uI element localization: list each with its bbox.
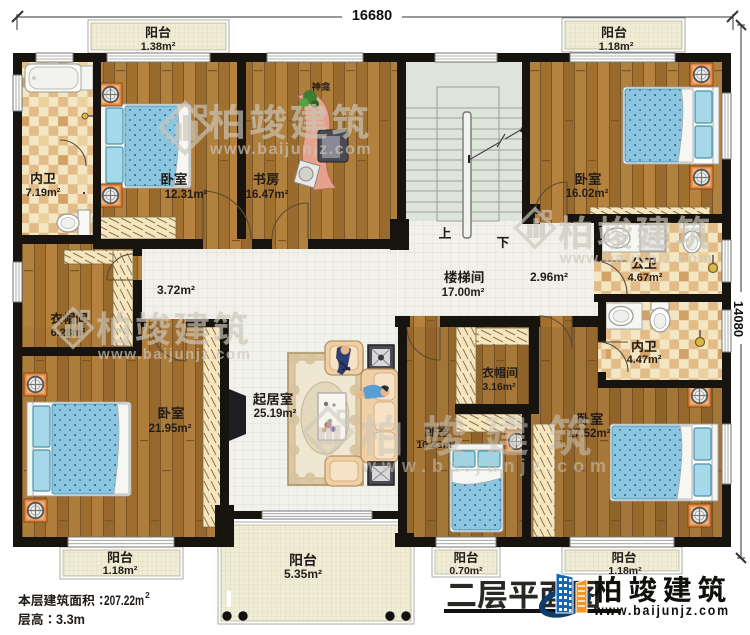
svg-text:2: 2 [145, 590, 150, 600]
svg-text:1.38m²: 1.38m² [141, 41, 176, 53]
svg-text:16680: 16680 [352, 8, 392, 24]
svg-text:16.02m²: 16.02m² [566, 188, 609, 200]
svg-text:25.19m²: 25.19m² [254, 408, 297, 420]
svg-text:16.47m²: 16.47m² [246, 189, 289, 201]
svg-text:3.3m: 3.3m [56, 612, 85, 627]
svg-text:14080: 14080 [731, 301, 746, 337]
svg-text:17.00m²: 17.00m² [442, 287, 485, 299]
svg-text:7.19m²: 7.19m² [26, 187, 61, 199]
svg-text:207.22m: 207.22m [104, 593, 144, 608]
svg-text:1.18m²: 1.18m² [608, 565, 642, 577]
svg-text:www.baijunjz.com: www.baijunjz.com [593, 603, 730, 618]
svg-text:4.47m²: 4.47m² [627, 354, 662, 366]
svg-text:12.31m²: 12.31m² [165, 189, 208, 201]
svg-text:1.18m²: 1.18m² [103, 565, 138, 577]
svg-text:www.baijunjz.com: www.baijunjz.com [209, 141, 372, 158]
svg-text:1.18m²: 1.18m² [599, 41, 634, 53]
svg-text:www.baijunjz.com: www.baijunjz.com [559, 250, 713, 267]
svg-text:5.35m²: 5.35m² [284, 567, 322, 581]
svg-text:0.70m²: 0.70m² [449, 565, 483, 577]
svg-text:21.95m²: 21.95m² [149, 423, 192, 435]
svg-text:www.baijunjz.com: www.baijunjz.com [97, 346, 251, 363]
svg-text:4.67m²: 4.67m² [628, 272, 663, 284]
svg-text:2.96m²: 2.96m² [530, 270, 568, 284]
svg-text:3.72m²: 3.72m² [157, 283, 195, 297]
svg-text:www.baijunjz.com: www.baijunjz.com [361, 456, 612, 476]
svg-text:3.16m²: 3.16m² [482, 381, 516, 393]
